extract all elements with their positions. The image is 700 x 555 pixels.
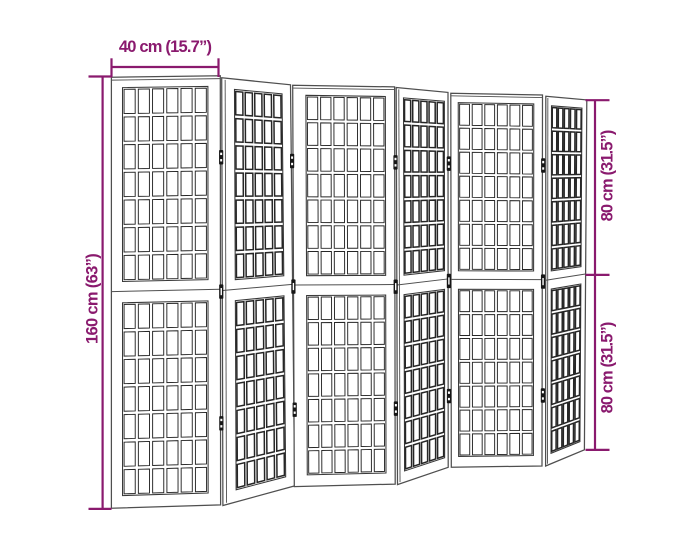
svg-text:40 cm (15.7”): 40 cm (15.7”) xyxy=(119,38,212,56)
svg-text:160 cm (63”): 160 cm (63”) xyxy=(84,254,102,344)
svg-text:80 cm (31.5”): 80 cm (31.5”) xyxy=(599,130,617,221)
svg-text:80 cm (31.5”): 80 cm (31.5”) xyxy=(599,322,617,413)
